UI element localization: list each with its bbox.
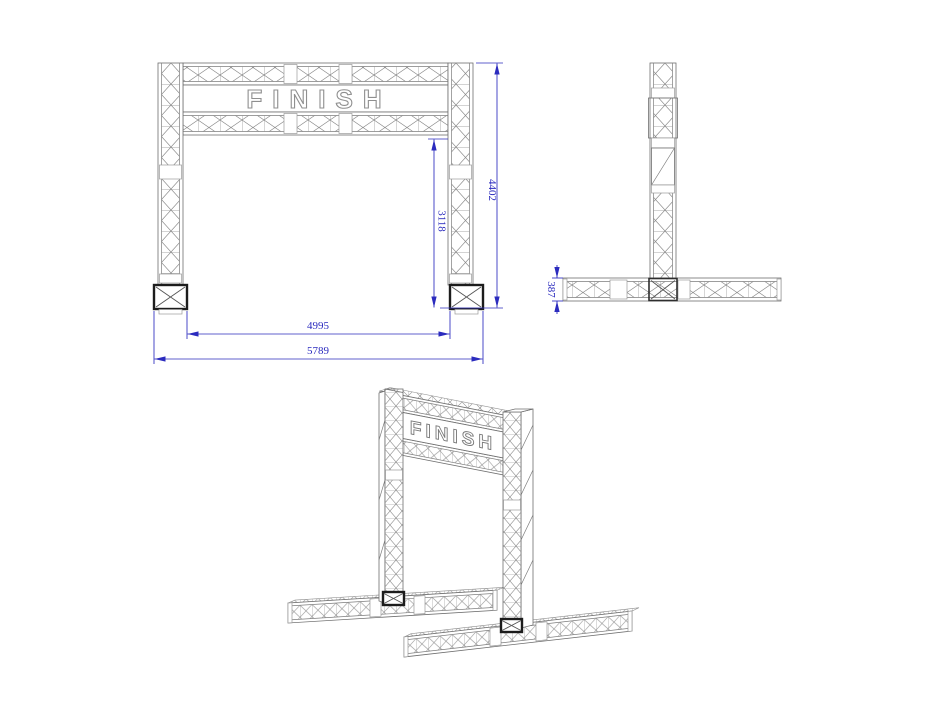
iso-outrigger-connector [490, 627, 501, 646]
lower-beam-connector [284, 114, 297, 134]
side-column-connector [652, 88, 675, 98]
right-column-connector [450, 165, 472, 179]
lower-beam-lacing [183, 116, 448, 132]
right-base-pad [455, 310, 478, 315]
cad-canvas: FINISH [0, 0, 948, 707]
side-base-connector [678, 280, 690, 299]
left-column-connector [160, 165, 182, 179]
dimension-value: 4402 [486, 179, 498, 201]
right-column-connector [450, 274, 472, 283]
side-base-endcap [563, 279, 567, 300]
dimension-overall-width: 5789 [154, 311, 483, 364]
iso-outrigger-connector [414, 596, 425, 615]
isometric-view: FINISH [288, 388, 639, 658]
front-lower-beam [183, 112, 448, 135]
top-beam-connector [284, 65, 297, 84]
left-column-connector [160, 274, 182, 283]
side-base-endcap [777, 279, 781, 300]
side-view: 387 [545, 63, 781, 314]
lower-beam-connector [339, 114, 352, 134]
banner-text: FINISH [246, 84, 391, 114]
top-beam-connector [339, 65, 352, 84]
iso-right-column-lacing [503, 412, 521, 628]
dimension-base-height: 387 [545, 265, 563, 314]
iso-outrigger-connector [536, 622, 547, 641]
side-base-connector [610, 280, 627, 299]
side-column-connector [652, 185, 675, 193]
side-column-connector [652, 138, 675, 148]
iso-outrigger-endcap [288, 603, 292, 623]
front-left-base [154, 285, 187, 314]
side-base-lacing [563, 282, 781, 298]
dimension-clear-height: 3118 [428, 139, 448, 308]
top-beam-lacing [183, 67, 448, 82]
front-right-column [448, 63, 473, 285]
front-left-column [158, 63, 183, 285]
side-column [649, 63, 678, 278]
iso-right-column-connector [504, 500, 521, 510]
dimension-value: 3118 [436, 210, 448, 232]
iso-right-column [501, 409, 533, 632]
front-top-beam [183, 63, 448, 85]
dimension-value: 387 [545, 281, 557, 298]
dimension-value: 4995 [307, 320, 330, 332]
iso-outrigger-endcap [628, 611, 632, 631]
side-base-truss [563, 278, 781, 301]
iso-outrigger-endcap [404, 637, 408, 657]
front-banner: FINISH [183, 84, 448, 114]
front-view: FINISH [154, 63, 503, 364]
iso-left-column [379, 389, 404, 605]
front-right-base [450, 285, 483, 314]
dimension-inner-span: 4995 [187, 311, 450, 339]
iso-left-column-connector [386, 470, 403, 480]
truss-drawing: FINISH [0, 0, 948, 707]
iso-left-column-lacing [385, 389, 403, 601]
dimension-value: 5789 [307, 345, 330, 357]
left-base-pad [159, 310, 182, 315]
iso-outrigger-endcap [493, 590, 497, 610]
